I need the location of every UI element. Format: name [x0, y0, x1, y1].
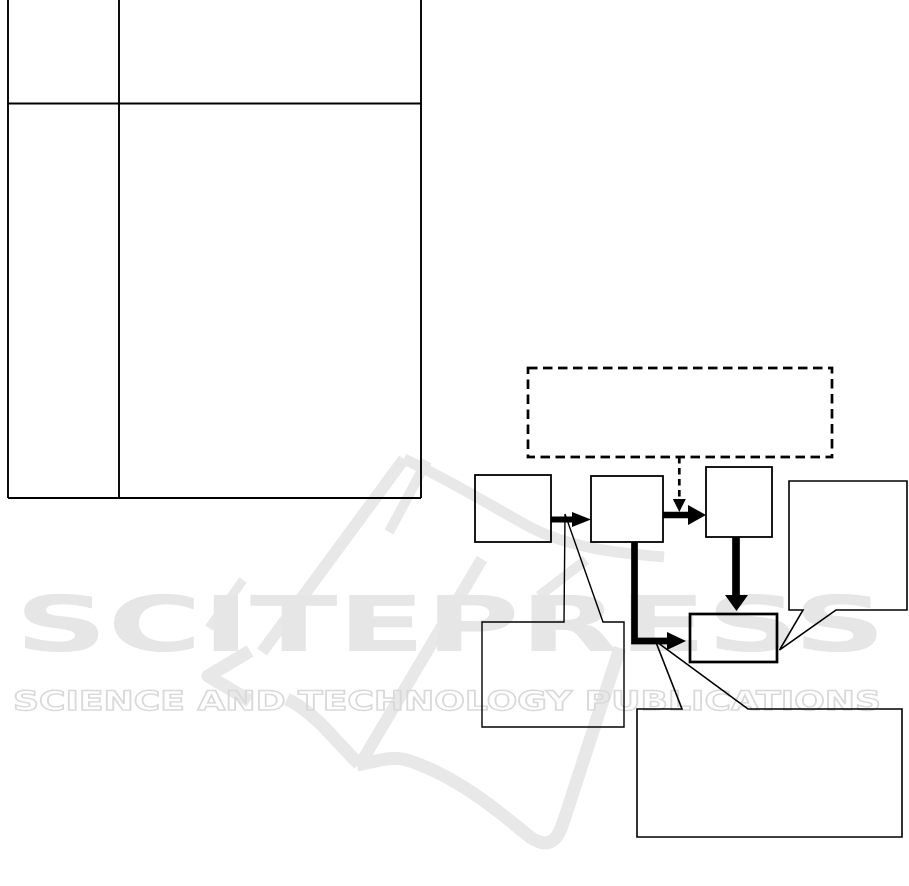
callout-bottom-box: [637, 641, 902, 837]
watermark-wave-stroke: [357, 648, 620, 843]
dashed-annotation-box: [528, 368, 832, 457]
watermark-logo-text: SCITEPRESS: [15, 581, 886, 670]
arrow-b-to-c-head: [688, 505, 706, 525]
watermark-tagline-text: SCIENCE AND TECHNOLOGY PUBLICATIONS: [13, 686, 881, 717]
flow-box-b: [591, 476, 663, 542]
page-figure-canvas: SCITEPRESS SCIENCE AND TECHNOLOGY PUBLIC…: [0, 0, 909, 886]
results-table: [8, 0, 421, 498]
dashed-arrow-head: [673, 499, 686, 512]
scitepress-watermark: SCITEPRESS SCIENCE AND TECHNOLOGY PUBLIC…: [13, 459, 886, 843]
flow-box-c: [706, 467, 772, 537]
arrow-a-to-b-head: [572, 512, 591, 527]
paper-page: SCITEPRESS SCIENCE AND TECHNOLOGY PUBLIC…: [0, 0, 909, 886]
